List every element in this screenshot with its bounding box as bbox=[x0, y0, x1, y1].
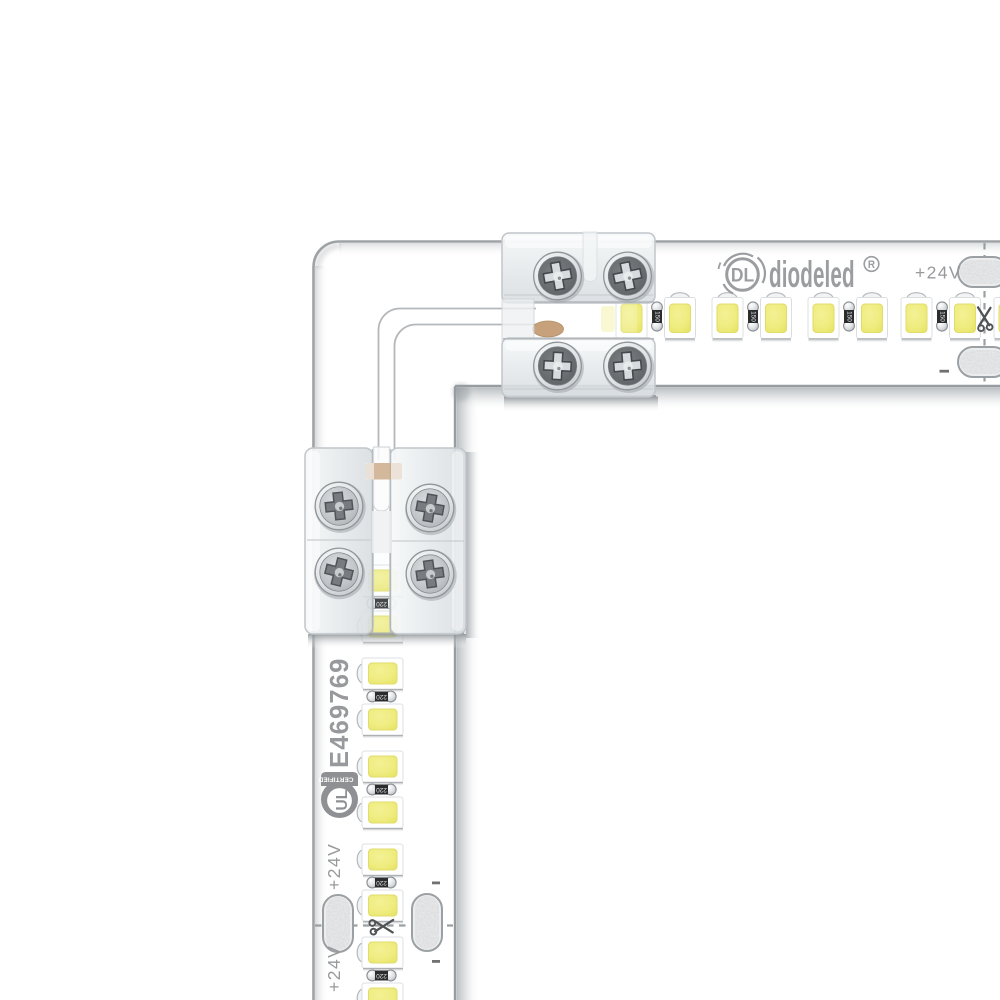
svg-text:CERTIFIED: CERTIFIED bbox=[318, 776, 353, 783]
svg-text:+24V: +24V bbox=[324, 843, 344, 890]
svg-text:+24V: +24V bbox=[915, 263, 962, 283]
svg-text:UL: UL bbox=[334, 790, 351, 811]
svg-text:diodeled: diodeled bbox=[769, 255, 855, 296]
svg-text:DL: DL bbox=[731, 264, 754, 286]
svg-text:E469769: E469769 bbox=[326, 658, 354, 769]
svg-text:+24V: +24V bbox=[324, 945, 344, 992]
svg-text:R: R bbox=[868, 260, 876, 272]
